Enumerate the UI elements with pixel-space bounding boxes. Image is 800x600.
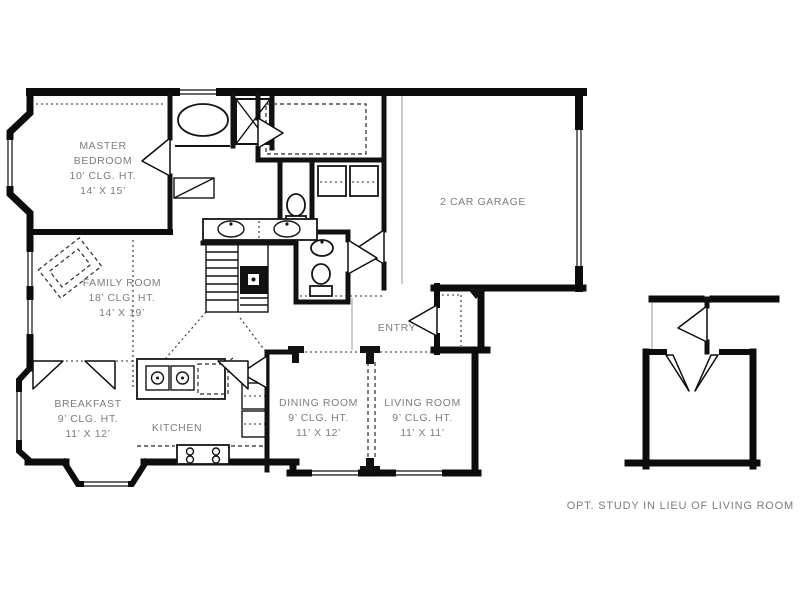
door-swing-icon [678, 306, 707, 342]
kitchen-island-sink-icon [137, 359, 228, 399]
double-vanity-icon [203, 219, 317, 240]
french-doors-icon [666, 355, 689, 391]
washer-dryer-icon [318, 166, 378, 196]
floor-plan: MASTER BEDROOM 10’ CLG. HT. 14’ X 15’ FA… [0, 0, 800, 600]
room-label-living-room: LIVING ROOM 9’ CLG. HT. 11’ X 11’ [360, 396, 485, 441]
columns [288, 288, 485, 473]
room-label-entry: ENTRY [357, 321, 437, 336]
wardrobe-closet [174, 178, 214, 198]
powder-room-fixtures [310, 240, 333, 296]
splayed-opening [33, 361, 63, 389]
splayed-opening [85, 361, 115, 389]
room-label-family-room: FAMILY ROOM 18’ CLG. HT. 14’ X 19’ [42, 276, 202, 321]
room-label-kitchen: KITCHEN [117, 421, 237, 436]
room-label-master-bedroom: MASTER BEDROOM 10’ CLG. HT. 14’ X 15’ [33, 139, 173, 199]
option-caption: OPT. STUDY IN LIEU OF LIVING ROOM [556, 500, 794, 512]
french-doors-icon [695, 355, 718, 391]
bathtub-icon [178, 104, 228, 136]
thin-lines [352, 96, 652, 350]
staircase-icon [206, 244, 268, 312]
room-label-garage: 2 CAR GARAGE [403, 195, 563, 210]
range-cooktop-icon [177, 445, 229, 464]
optional-study-detail [628, 299, 776, 466]
toilet-icon [312, 264, 330, 284]
master-closet-shelf [266, 104, 366, 154]
